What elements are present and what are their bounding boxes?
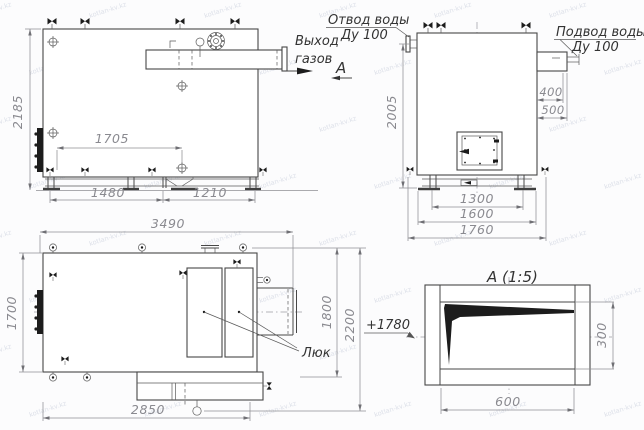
svg-text:Ду 100: Ду 100 [340,28,388,43]
dim-1700: 1700 [4,296,19,330]
technical-drawing-sheet: kotlan-kv.kzkotlan-kv.kzkotlan-kv.kzkotl… [0,0,644,430]
dim-1480: 1480 [91,185,125,200]
dim-1705: 1705 [95,131,129,146]
gas-duct-flange [282,47,287,71]
svg-text:Ду 100: Ду 100 [571,40,619,55]
dim-1210: 1210 [193,185,227,200]
gas-duct [146,50,282,69]
dim-1760: 1760 [460,222,494,237]
dim-1300: 1300 [460,191,494,206]
label-gas-exit-2: газов [295,52,332,67]
dim-1600: 1600 [460,206,494,221]
dim-3490: 3490 [151,216,185,231]
svg-text:Люк: Люк [301,346,331,361]
dim-400: 400 [539,85,562,99]
detail-title: А (1:5) [486,268,538,286]
dim-600: 600 [495,394,521,409]
dim-1800: 1800 [319,295,334,329]
dim-2850: 2850 [131,402,165,417]
furnace-door [457,132,502,170]
label-gas-exit-1: Выход [295,34,339,49]
dim-500: 500 [541,103,564,117]
dim-2200: 2200 [342,308,357,342]
svg-text:Подвод воды: Подвод воды [556,25,644,40]
dim-2005: 2005 [384,95,399,129]
boiler-drawing: kotlan-kv.kzkotlan-kv.kzkotlan-kv.kzkotl… [0,0,644,430]
dim-2185: 2185 [10,95,25,129]
svg-text:+1780: +1780 [366,318,410,333]
svg-text:А: А [335,59,346,77]
svg-text:Отвод воды: Отвод воды [328,13,409,28]
dim-300: 300 [594,322,609,348]
